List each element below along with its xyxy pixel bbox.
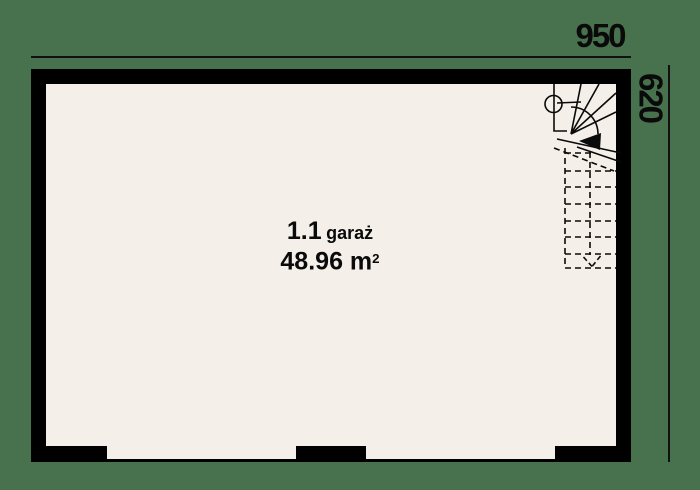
room-area: 48.96 m2 (230, 247, 430, 277)
dimension-value-top: 950 (560, 19, 640, 52)
room-name: garaż (326, 223, 373, 243)
garage-door-right (366, 459, 555, 462)
garage-door-opening-left (107, 446, 296, 459)
room-label: 1.1 garaż 48.96 m2 (230, 219, 430, 277)
floor-plan: 950 620 1.1 garaż 48.96 m2 (0, 0, 700, 490)
room-area-value: 48.96 m (280, 247, 372, 275)
dimension-value-right: 620 (635, 58, 668, 138)
garage-door-opening-right (366, 446, 555, 459)
dimension-line-top (31, 56, 631, 58)
room-number: 1.1 (287, 217, 322, 245)
dimension-line-right (668, 65, 670, 462)
garage-door-left (107, 459, 296, 462)
room-area-exponent: 2 (372, 251, 379, 266)
room-title: 1.1 garaż (230, 219, 430, 247)
